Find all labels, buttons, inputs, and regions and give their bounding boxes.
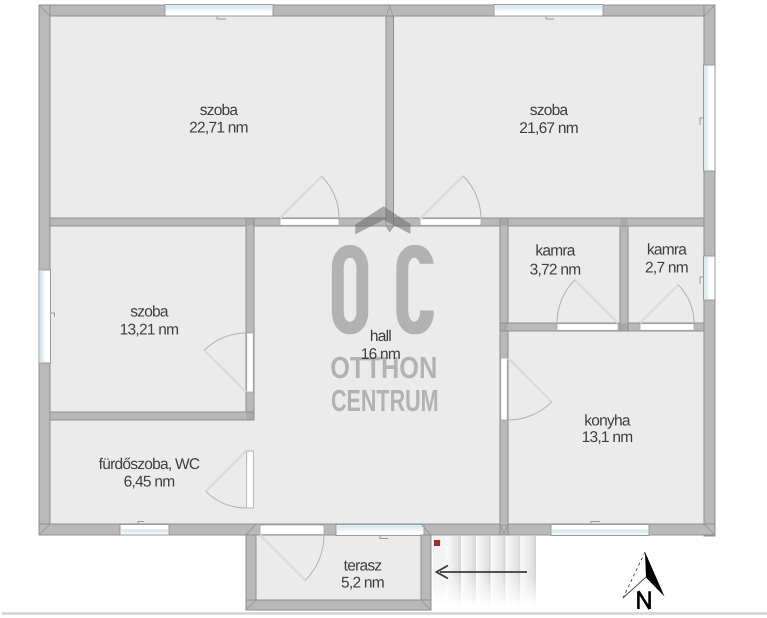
svg-text:2,7 nm: 2,7 nm: [645, 260, 688, 277]
svg-text:terasz: terasz: [344, 558, 382, 575]
svg-text:21,67 nm: 21,67 nm: [519, 120, 578, 137]
svg-text:szoba: szoba: [130, 304, 169, 321]
svg-text:3,72 nm: 3,72 nm: [530, 262, 581, 279]
svg-text:6,45 nm: 6,45 nm: [124, 474, 175, 491]
svg-text:kamra: kamra: [535, 243, 575, 260]
svg-text:szoba: szoba: [530, 102, 569, 119]
svg-text:fürdőszoba, WC: fürdőszoba, WC: [99, 456, 200, 473]
svg-text:kamra: kamra: [647, 242, 687, 259]
svg-text:CENTRUM: CENTRUM: [331, 384, 439, 418]
svg-text:22,71 nm: 22,71 nm: [189, 120, 248, 137]
svg-text:hall: hall: [370, 328, 391, 345]
svg-text:szoba: szoba: [200, 102, 239, 119]
svg-text:konyha: konyha: [584, 413, 631, 430]
svg-text:5,2 nm: 5,2 nm: [341, 575, 384, 592]
svg-text:13,21 nm: 13,21 nm: [120, 322, 179, 339]
svg-text:16 nm: 16 nm: [361, 346, 400, 363]
svg-text:13,1 nm: 13,1 nm: [582, 429, 633, 446]
